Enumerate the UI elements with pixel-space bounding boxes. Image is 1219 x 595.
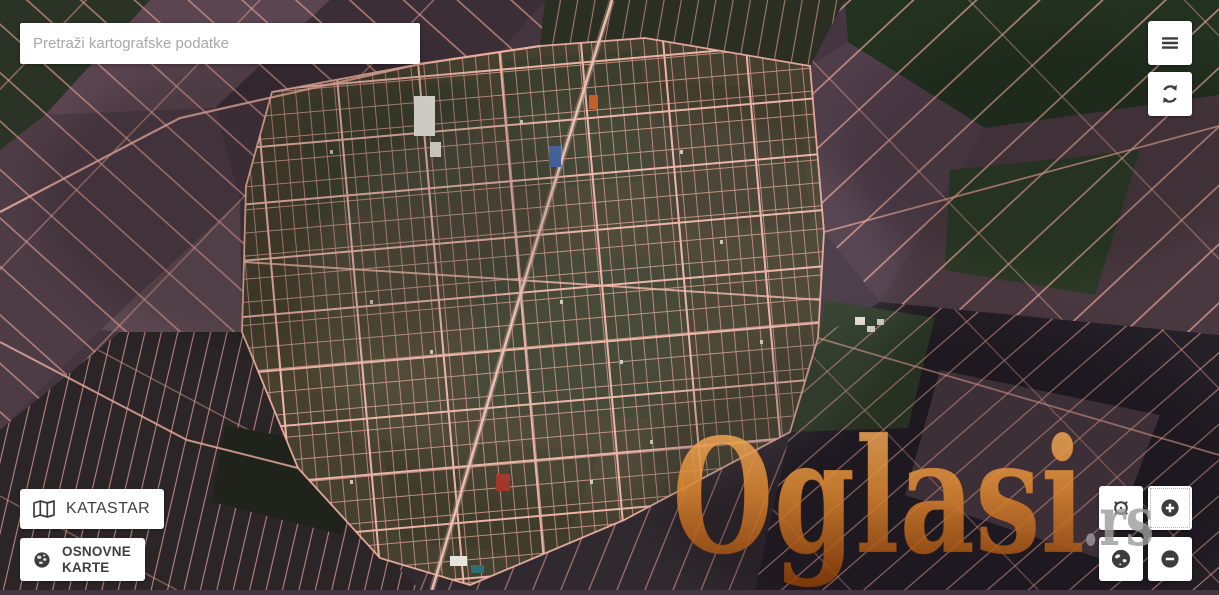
app-root: { "search": { "placeholder": "Pretraži k… <box>0 0 1219 590</box>
earth-icon <box>1109 547 1133 571</box>
globe-sphere-icon <box>31 549 53 571</box>
folded-map-icon <box>31 498 57 520</box>
katastar-layer-button[interactable]: KATASTAR <box>20 489 164 529</box>
menu-button[interactable] <box>1148 21 1192 65</box>
plus-circle-icon <box>1158 496 1182 520</box>
crosshair-locate-icon <box>1109 496 1133 520</box>
katastar-label: KATASTAR <box>66 500 150 518</box>
osnovne-karte-layer-button[interactable]: OSNOVNE KARTE <box>20 538 145 581</box>
basemap-globe-button[interactable] <box>1099 537 1143 581</box>
osnovne-label-line1: OSNOVNE <box>62 544 131 559</box>
search-input[interactable] <box>20 23 420 64</box>
refresh-button[interactable] <box>1148 72 1192 116</box>
map-canvas[interactable] <box>0 0 1219 590</box>
osnovne-label-line2: KARTE <box>62 560 131 575</box>
refresh-icon <box>1158 82 1182 106</box>
hamburger-menu-icon <box>1158 31 1182 55</box>
locate-button[interactable] <box>1099 486 1143 530</box>
zoom-in-button[interactable] <box>1148 486 1192 530</box>
zoom-out-button[interactable] <box>1148 537 1192 581</box>
minus-circle-icon <box>1158 547 1182 571</box>
